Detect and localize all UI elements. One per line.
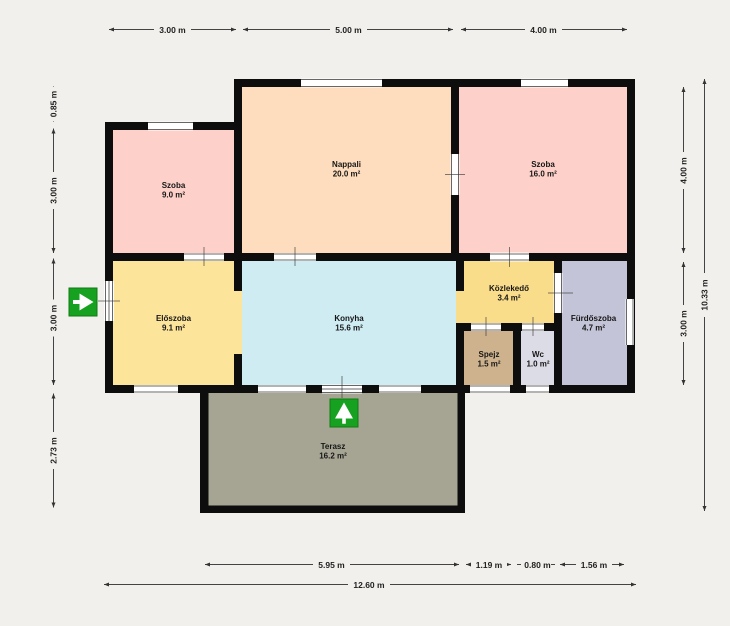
svg-text:Szoba: Szoba [162, 181, 186, 190]
svg-text:Terasz: Terasz [321, 442, 346, 451]
svg-text:9.1 m²: 9.1 m² [162, 324, 185, 333]
svg-text:Nappali: Nappali [332, 160, 361, 169]
svg-text:Szoba: Szoba [531, 160, 555, 169]
svg-text:Wc: Wc [532, 350, 545, 359]
svg-text:3.4 m²: 3.4 m² [497, 294, 520, 303]
svg-text:4.00 m: 4.00 m [679, 157, 689, 184]
svg-text:Fürdőszoba: Fürdőszoba [571, 314, 617, 323]
svg-text:1.19 m: 1.19 m [476, 560, 503, 570]
svg-text:2.73 m: 2.73 m [49, 437, 59, 464]
svg-text:10.33 m: 10.33 m [700, 279, 710, 311]
svg-text:Előszoba: Előszoba [156, 314, 192, 323]
svg-text:15.6 m²: 15.6 m² [335, 324, 363, 333]
svg-text:Konyha: Konyha [334, 314, 364, 323]
svg-text:4.7 m²: 4.7 m² [582, 324, 605, 333]
svg-text:3.00 m: 3.00 m [49, 304, 59, 331]
svg-text:3.00 m: 3.00 m [49, 177, 59, 204]
svg-text:16.0 m²: 16.0 m² [529, 170, 557, 179]
svg-text:Közlekedő: Közlekedő [489, 284, 529, 293]
svg-text:1.5 m²: 1.5 m² [477, 360, 500, 369]
svg-text:4.00 m: 4.00 m [530, 25, 557, 35]
svg-text:5.00 m: 5.00 m [335, 25, 362, 35]
svg-text:9.0 m²: 9.0 m² [162, 191, 185, 200]
svg-text:0.80 m: 0.80 m [524, 560, 551, 570]
svg-text:0.85 m: 0.85 m [49, 90, 59, 117]
svg-text:12.60 m: 12.60 m [353, 580, 385, 590]
svg-text:1.56 m: 1.56 m [581, 560, 608, 570]
svg-text:1.0 m²: 1.0 m² [526, 360, 549, 369]
svg-text:Spejz: Spejz [479, 350, 500, 359]
svg-text:16.2 m²: 16.2 m² [319, 452, 347, 461]
svg-text:3.00 m: 3.00 m [159, 25, 186, 35]
svg-text:5.95 m: 5.95 m [318, 560, 345, 570]
svg-text:3.00 m: 3.00 m [679, 310, 689, 337]
svg-text:20.0 m²: 20.0 m² [333, 170, 361, 179]
